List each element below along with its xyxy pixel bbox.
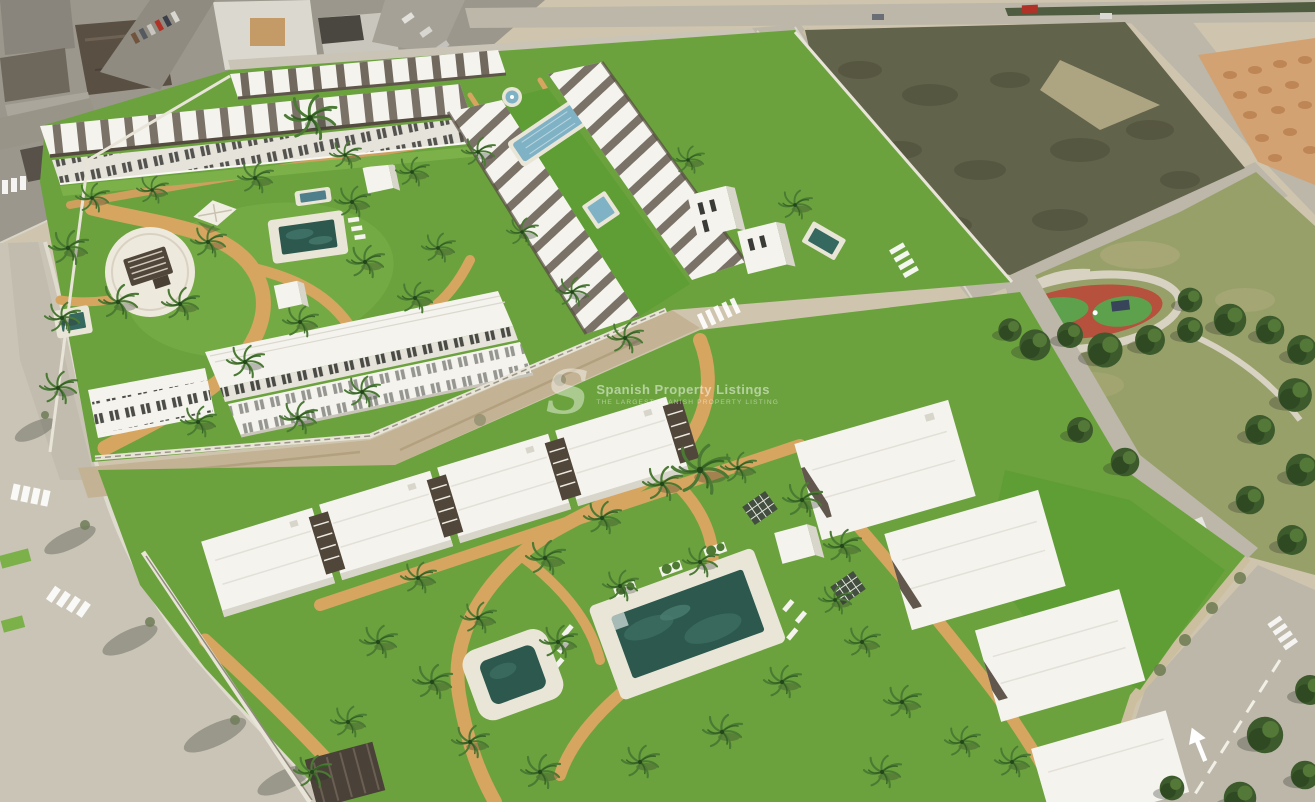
gray-car — [872, 14, 884, 20]
fountain — [502, 87, 522, 107]
white-car — [1100, 13, 1112, 19]
render-canvas — [0, 0, 1315, 802]
red-car — [1022, 5, 1038, 14]
aerial-development-render: S Spanish Property Listings THE LARGEST … — [0, 0, 1315, 802]
